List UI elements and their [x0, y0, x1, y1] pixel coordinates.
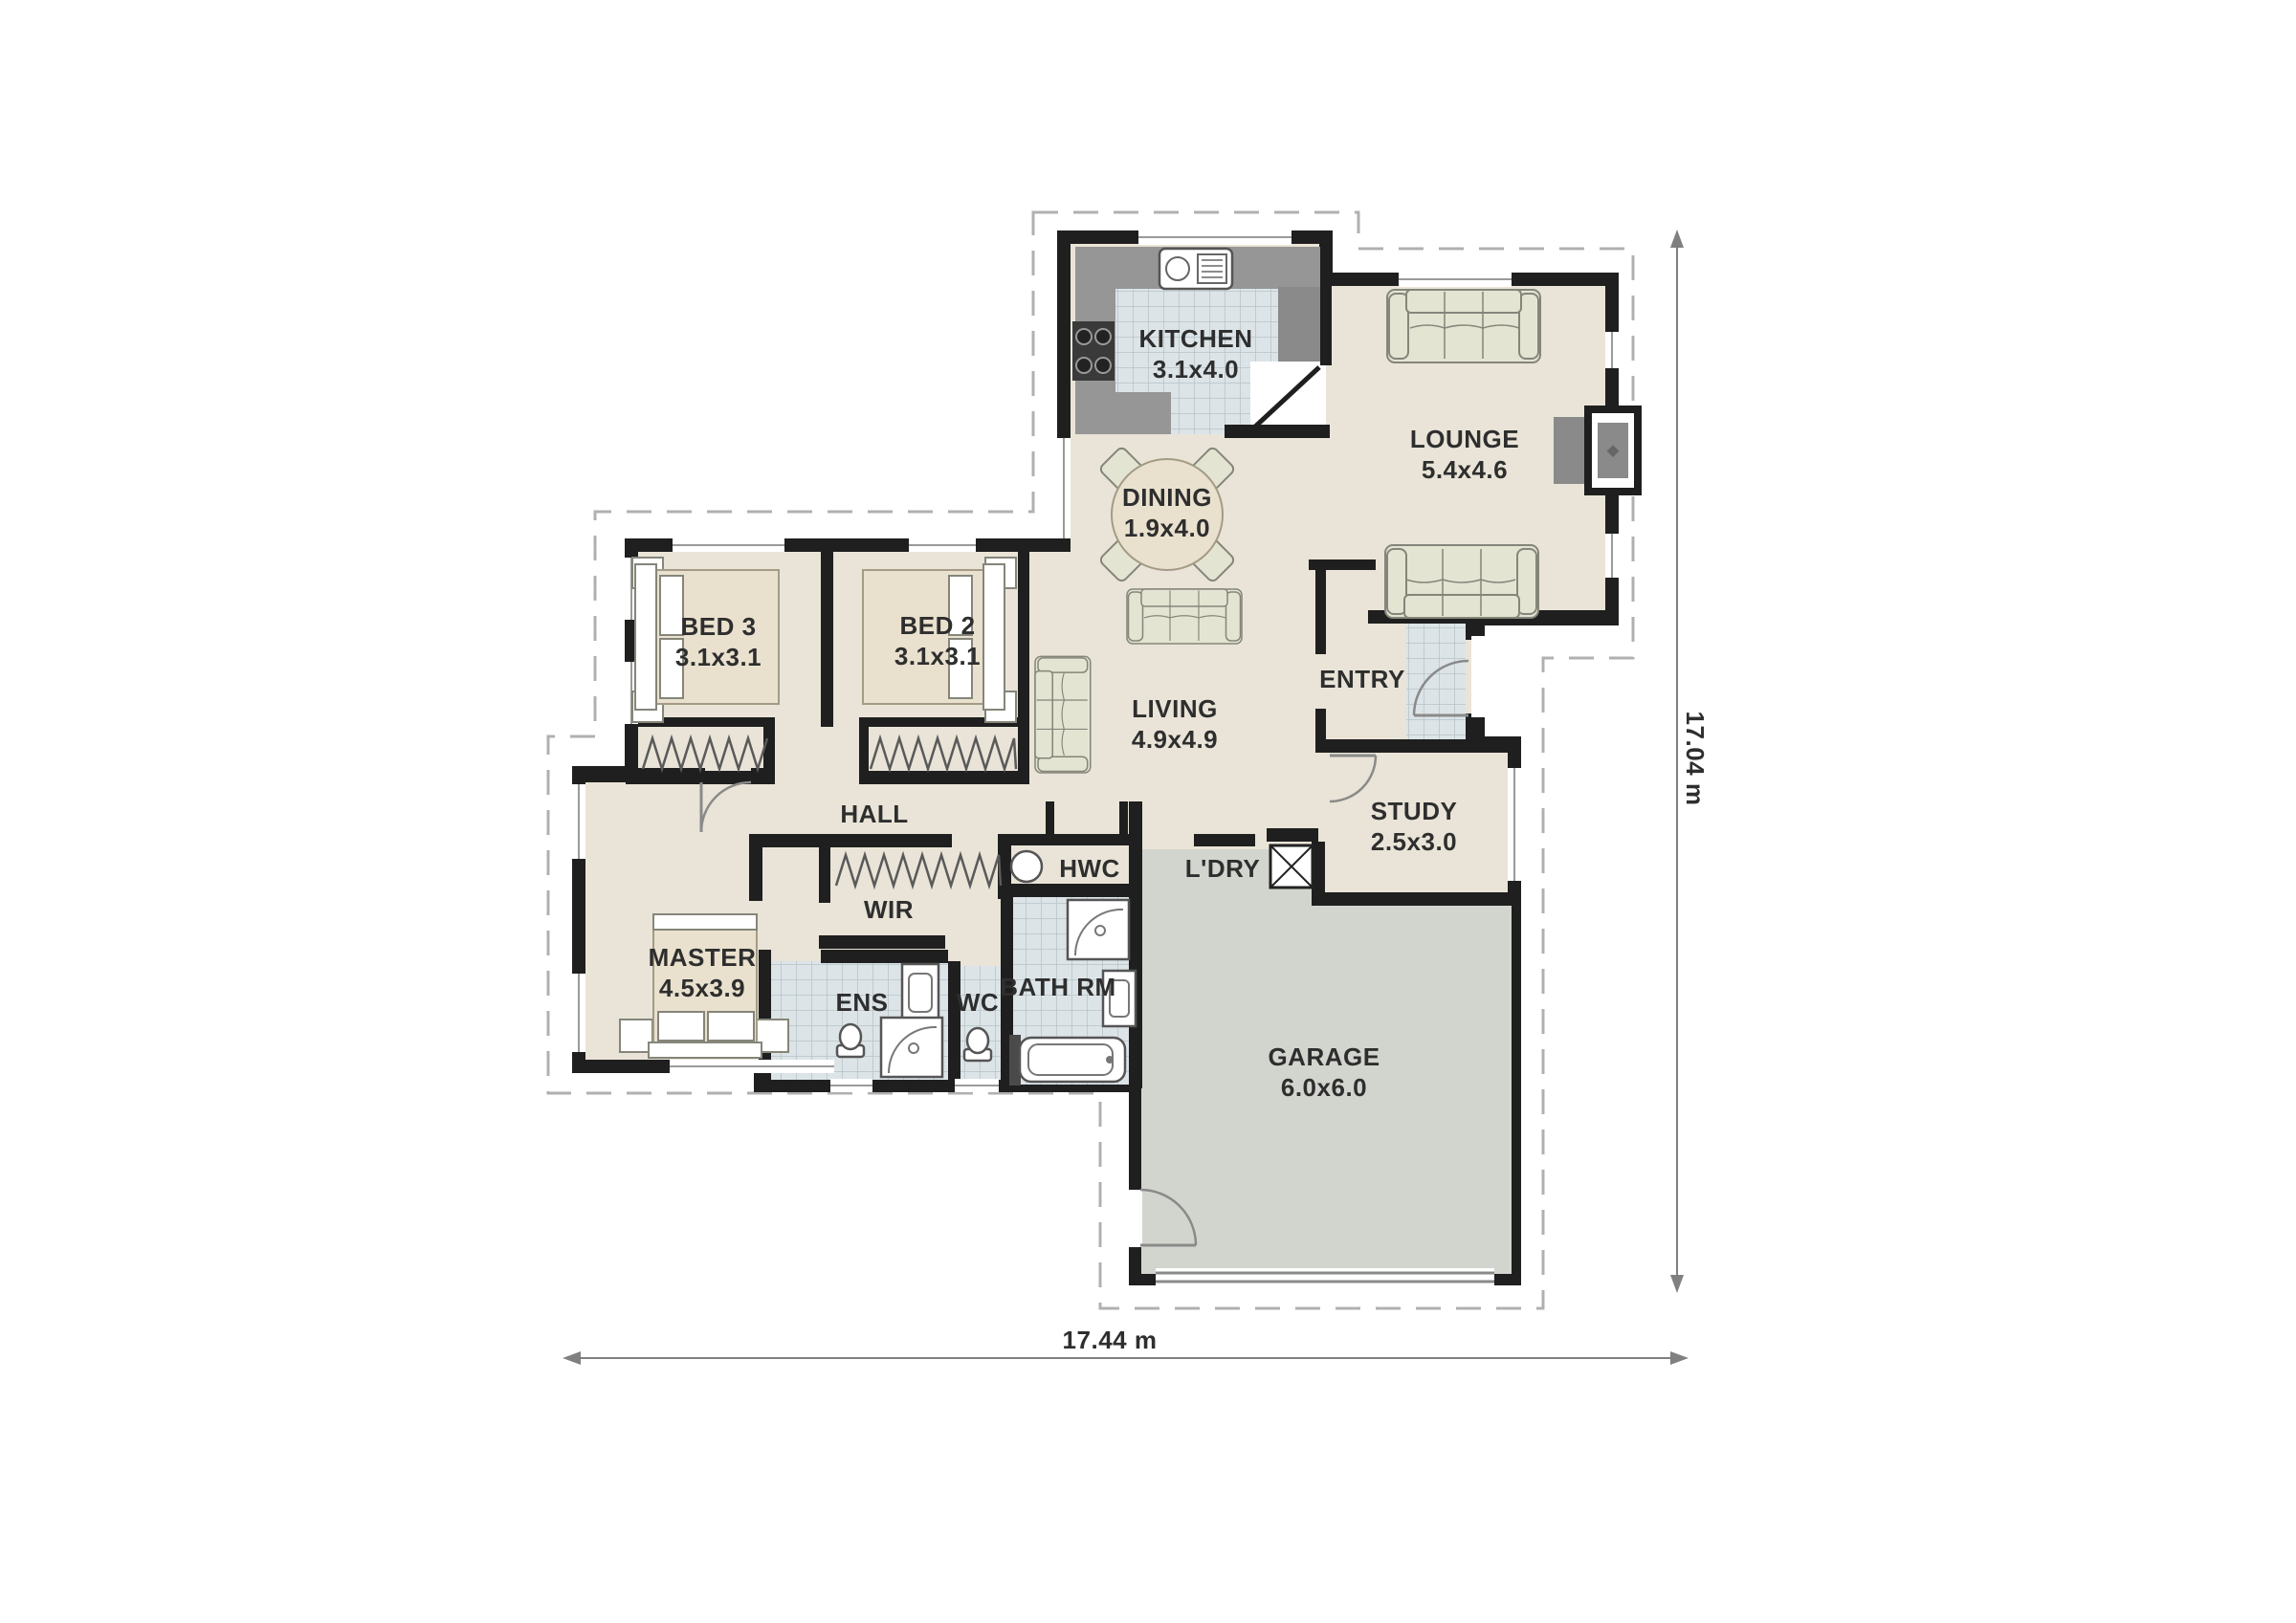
window	[1399, 273, 1512, 287]
room-label-master: MASTER 4.5x3.9	[649, 942, 757, 1003]
window	[909, 538, 976, 552]
wc-toilet	[964, 1028, 991, 1061]
lounge-sofa-top	[1387, 290, 1540, 362]
window	[1605, 534, 1620, 578]
floor-plan-canvas: KITCHEN 3.1x4.0 LOUNGE 5.4x4.6 DINING 1.…	[0, 0, 2296, 1623]
room-label-bed2: BED 2 3.1x3.1	[894, 610, 981, 671]
room-name: WIR	[864, 894, 914, 925]
window	[1605, 332, 1620, 368]
room-size: 3.1x3.1	[675, 642, 762, 672]
room-label-hall: HALL	[840, 799, 908, 829]
room-label-kitchen: KITCHEN 3.1x4.0	[1138, 323, 1252, 384]
room-label-study: STUDY 2.5x3.0	[1371, 796, 1458, 857]
room-size: 2.5x3.0	[1371, 826, 1458, 857]
room-name: KITCHEN	[1138, 323, 1252, 354]
room-label-wc: WC	[957, 987, 999, 1018]
room-name: ENS	[836, 987, 889, 1018]
stove-cooktop	[1072, 321, 1115, 381]
room-label-lounge: LOUNGE 5.4x4.6	[1410, 424, 1519, 485]
room-name: BED 3	[675, 611, 762, 642]
room-name: ENTRY	[1319, 664, 1405, 694]
room-name: LOUNGE	[1410, 424, 1519, 454]
room-size: 3.1x3.1	[894, 641, 981, 671]
room-size: 1.9x4.0	[1122, 513, 1212, 543]
lounge-sofa-bottom	[1385, 545, 1538, 618]
room-name: WC	[957, 987, 999, 1018]
room-label-wir: WIR	[864, 894, 914, 925]
dimension-label-height: 17.04 m	[1680, 712, 1711, 806]
room-label-garage: GARAGE 6.0x6.0	[1268, 1042, 1380, 1103]
living-sofa-2	[1035, 656, 1091, 773]
room-label-ldry: L'DRY	[1185, 853, 1261, 884]
room-label-ens: ENS	[836, 987, 889, 1018]
window	[1057, 438, 1071, 538]
room-name: BATH RM	[1000, 972, 1115, 1002]
room-size: 5.4x4.6	[1410, 454, 1519, 485]
room-name: DINING	[1122, 482, 1212, 513]
window	[830, 1079, 872, 1092]
room-label-bathrm: BATH RM	[1000, 972, 1115, 1002]
room-name: BED 2	[894, 610, 981, 641]
window	[1508, 768, 1521, 881]
window	[670, 1060, 834, 1073]
hot-water-cylinder	[1011, 851, 1042, 882]
room-name: MASTER	[649, 942, 757, 973]
room-size: 6.0x6.0	[1268, 1072, 1380, 1103]
wc-tile	[960, 966, 1001, 1080]
fridge	[1278, 287, 1320, 362]
room-size: 4.9x4.9	[1132, 724, 1218, 755]
room-label-hwc: HWC	[1059, 853, 1120, 884]
floor-plan-drawing	[0, 0, 2296, 1623]
window	[572, 974, 585, 1052]
room-label-entry: ENTRY	[1319, 664, 1405, 694]
window	[572, 784, 585, 859]
room-size: 3.1x4.0	[1138, 354, 1252, 384]
room-label-dining: DINING 1.9x4.0	[1122, 482, 1212, 543]
window	[673, 538, 784, 552]
room-name: L'DRY	[1185, 853, 1261, 884]
room-name: HALL	[840, 799, 908, 829]
laundry-tub	[1270, 845, 1313, 888]
room-name: LIVING	[1132, 693, 1218, 724]
room-name: GARAGE	[1268, 1042, 1380, 1072]
fireplace	[1554, 406, 1642, 495]
living-sofa	[1127, 589, 1242, 644]
room-size: 4.5x3.9	[649, 973, 757, 1003]
room-name: HWC	[1059, 853, 1120, 884]
window	[955, 1079, 999, 1092]
dimension-label-width: 17.44 m	[1063, 1325, 1158, 1355]
garage-door	[1156, 1268, 1494, 1287]
window	[1138, 230, 1291, 245]
kitchen-sink	[1159, 249, 1232, 289]
room-label-bed3: BED 3 3.1x3.1	[675, 611, 762, 672]
room-label-living: LIVING 4.9x4.9	[1132, 693, 1218, 755]
entry-porch-tile	[1406, 624, 1466, 741]
room-name: STUDY	[1371, 796, 1458, 826]
